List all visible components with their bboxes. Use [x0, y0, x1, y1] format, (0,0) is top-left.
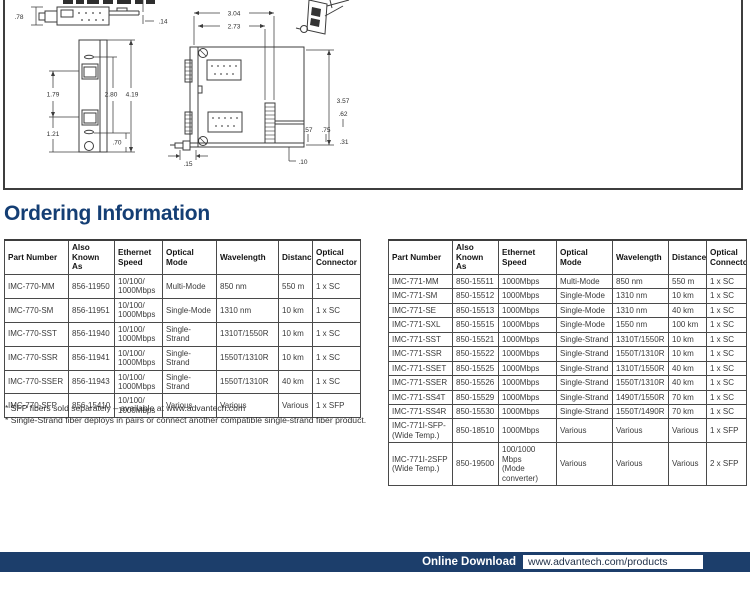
table-cell: Various — [669, 419, 707, 443]
column-header: Also Known As — [69, 240, 115, 275]
table-cell: IMC-771-SS4T — [389, 390, 453, 404]
table-cell: 1310T/1550R — [613, 332, 669, 346]
table-cell: Single-Strand — [557, 332, 613, 346]
dimension-label: .78 — [14, 14, 23, 21]
table-row: IMC-770-SM856-1195110/100/ 1000MbpsSingl… — [5, 298, 361, 322]
table-cell: IMC-771-SSER — [389, 376, 453, 390]
table-cell: 850-15525 — [453, 361, 499, 375]
table-row: IMC-771I-2SFP (Wide Temp.)850-19500100/1… — [389, 443, 747, 486]
table-cell: 550 m — [669, 275, 707, 289]
table-cell: 1 x SC — [707, 303, 747, 317]
table-cell: 2 x SFP — [707, 443, 747, 486]
table-cell: 1000Mbps — [499, 361, 557, 375]
table-cell: 856-11941 — [69, 346, 115, 370]
table-cell: 10/100/ 1000Mbps — [115, 370, 163, 394]
front-panel-view — [49, 40, 135, 152]
table-cell: 70 km — [669, 404, 707, 418]
table-cell: 10/100/ 1000Mbps — [115, 322, 163, 346]
table-cell: IMC-771-SXL — [389, 318, 453, 332]
dimension-label: 4.19 — [126, 92, 139, 99]
download-url[interactable]: www.advantech.com/products — [523, 555, 703, 569]
table-cell: Single-Mode — [557, 303, 613, 317]
table-cell: 550 m — [279, 275, 313, 299]
ordering-table-imc771: Part NumberAlso Known AsEthernet SpeedOp… — [388, 239, 747, 486]
table-cell: 1 x SC — [707, 361, 747, 375]
dimension-label: 3.57 — [337, 98, 350, 105]
table-cell: 1 x SC — [313, 298, 361, 322]
table-cell: 850-18510 — [453, 419, 499, 443]
table-cell: 1550T/1310R — [613, 376, 669, 390]
table-cell: 850-15529 — [453, 390, 499, 404]
table-cell: IMC-771-MM — [389, 275, 453, 289]
table-cell: 850 nm — [217, 275, 279, 299]
dimension-label: .31 — [339, 139, 348, 146]
table-row: IMC-771-SS4T850-155291000MbpsSingle-Stra… — [389, 390, 747, 404]
header-row: Part NumberAlso Known AsEthernet SpeedOp… — [5, 240, 361, 275]
table-row: IMC-771-SE850-155131000MbpsSingle-Mode13… — [389, 303, 747, 317]
dimension-label: .57 — [303, 127, 312, 134]
table-cell: 850-15522 — [453, 347, 499, 361]
table-cell: Single-Strand — [557, 404, 613, 418]
table-cell: Single-Mode — [557, 318, 613, 332]
dimension-drawing: .78 .14 1.79 2.80 4.19 1.21 .70 3.04 2.7… — [3, 0, 743, 190]
table-cell: Various — [557, 419, 613, 443]
table-cell: Single-Strand — [163, 346, 217, 370]
table-row: IMC-771I-SFP- (Wide Temp.)850-185101000M… — [389, 419, 747, 443]
column-header: Optical Connector — [707, 240, 747, 275]
column-header: Optical Mode — [163, 240, 217, 275]
table-cell: IMC-770-SST — [5, 322, 69, 346]
ordering-table-imc770: Part NumberAlso Known AsEthernet SpeedOp… — [4, 239, 361, 418]
table-cell: 1490T/1550R — [613, 390, 669, 404]
table-cell: 1550T/1310R — [613, 347, 669, 361]
table-cell: 1 x SC — [313, 322, 361, 346]
table-cell: 10/100/ 1000Mbps — [115, 275, 163, 299]
table-cell: 1 x SC — [313, 346, 361, 370]
table-cell: 1 x SC — [707, 318, 747, 332]
table-cell: 1 x SC — [707, 347, 747, 361]
table-cell: 1 x SC — [707, 376, 747, 390]
dimension-label: .75 — [321, 127, 330, 134]
footnote-single-strand: * Single-Strand fiber deploys in pairs o… — [5, 414, 366, 426]
table-cell: IMC-771-SE — [389, 303, 453, 317]
table-cell: 856-11950 — [69, 275, 115, 299]
table-row: IMC-771-MM850-155111000MbpsMulti-Mode850… — [389, 275, 747, 289]
column-header: Part Number — [389, 240, 453, 275]
table-cell: Single-Strand — [163, 322, 217, 346]
table-cell: 1000Mbps — [499, 303, 557, 317]
table-cell: 850-15511 — [453, 275, 499, 289]
table-cell: Various — [557, 443, 613, 486]
online-download-label: Online Download — [422, 556, 516, 568]
dimension-label: 1.21 — [47, 131, 60, 138]
column-header: Also Known As — [453, 240, 499, 275]
dimension-label: .62 — [338, 111, 347, 118]
table-cell: 10 km — [279, 298, 313, 322]
table-cell: 1550T/1310R — [217, 370, 279, 394]
table-cell: 1000Mbps — [499, 347, 557, 361]
table-row: IMC-771-SSR850-155221000MbpsSingle-Stran… — [389, 347, 747, 361]
table-row: IMC-771-SST850-155211000MbpsSingle-Stran… — [389, 332, 747, 346]
table-cell: Single-Mode — [163, 298, 217, 322]
dimension-label: 2.73 — [228, 24, 241, 31]
module-side-view — [168, 11, 343, 161]
table-cell: 10 km — [279, 346, 313, 370]
table-row: IMC-771-SSER850-155261000MbpsSingle-Stra… — [389, 376, 747, 390]
dimension-label: 2.80 — [105, 92, 118, 99]
table-cell: IMC-771-SSET — [389, 361, 453, 375]
table-cell: 850-15526 — [453, 376, 499, 390]
header-row: Part NumberAlso Known AsEthernet SpeedOp… — [389, 240, 747, 275]
table-row: IMC-770-SSER856-1194310/100/ 1000MbpsSin… — [5, 370, 361, 394]
footnotes: * SFP fibers sold separately – available… — [5, 402, 366, 426]
table-cell: IMC-771-SM — [389, 289, 453, 303]
table-row: IMC-770-MM856-1195010/100/ 1000MbpsMulti… — [5, 275, 361, 299]
table-cell: 1000Mbps — [499, 289, 557, 303]
table-cell: 1310 nm — [613, 303, 669, 317]
dimension-label: .14 — [158, 19, 167, 26]
table-cell: IMC-771-SST — [389, 332, 453, 346]
table-cell: 1 x SC — [313, 275, 361, 299]
table-cell: 10 km — [669, 332, 707, 346]
table-cell: 1 x SC — [707, 390, 747, 404]
table-cell: 40 km — [279, 370, 313, 394]
table-cell: IMC-770-MM — [5, 275, 69, 299]
table-row: IMC-770-SST856-1194010/100/ 1000MbpsSing… — [5, 322, 361, 346]
table-cell: 1000Mbps — [499, 376, 557, 390]
dimension-drawing-svg: .78 .14 1.79 2.80 4.19 1.21 .70 3.04 2.7… — [5, 0, 740, 186]
table-row: IMC-771-SSET850-155251000MbpsSingle-Stra… — [389, 361, 747, 375]
column-header: Part Number — [5, 240, 69, 275]
table-cell: 850-15521 — [453, 332, 499, 346]
table-cell: 1 x SC — [313, 370, 361, 394]
column-header: Ethernet Speed — [115, 240, 163, 275]
table-cell: 10/100/ 1000Mbps — [115, 298, 163, 322]
table-cell: 850-15513 — [453, 303, 499, 317]
table-cell: 1550T/1490R — [613, 404, 669, 418]
side-view-top — [31, 0, 155, 25]
online-download-bar: Online Download www.advantech.com/produc… — [0, 552, 750, 572]
table-cell: 1000Mbps — [499, 390, 557, 404]
table-row: IMC-770-SSR856-1194110/100/ 1000MbpsSing… — [5, 346, 361, 370]
table-row: IMC-771-SXL850-155151000MbpsSingle-Mode1… — [389, 318, 747, 332]
column-header: Wavelength — [217, 240, 279, 275]
table-cell: 1 x SC — [707, 332, 747, 346]
table-cell: IMC-771-SS4R — [389, 404, 453, 418]
table-cell: 1310 nm — [613, 289, 669, 303]
dimension-label: .70 — [112, 140, 121, 147]
dimension-label: .10 — [298, 159, 307, 166]
table-cell: IMC-770-SSER — [5, 370, 69, 394]
table-cell: 1310T/1550R — [217, 322, 279, 346]
table-cell: 850-15530 — [453, 404, 499, 418]
table-cell: Single-Strand — [557, 390, 613, 404]
table-cell: 850-19500 — [453, 443, 499, 486]
table-cell: 1 x SC — [707, 404, 747, 418]
table-cell: 850-15515 — [453, 318, 499, 332]
table-cell: IMC-770-SSR — [5, 346, 69, 370]
table-cell: 100 km — [669, 318, 707, 332]
footnote-sfp: * SFP fibers sold separately – available… — [5, 402, 366, 414]
column-header: Wavelength — [613, 240, 669, 275]
table-cell: 856-11943 — [69, 370, 115, 394]
table-cell: Multi-Mode — [163, 275, 217, 299]
table-cell: Various — [613, 419, 669, 443]
table-cell: Single-Strand — [163, 370, 217, 394]
column-header: Distance — [279, 240, 313, 275]
column-header: Optical Connector — [313, 240, 361, 275]
table-cell: IMC-771I-SFP- (Wide Temp.) — [389, 419, 453, 443]
table-cell: 850-15512 — [453, 289, 499, 303]
table-cell: 10/100/ 1000Mbps — [115, 346, 163, 370]
table-cell: 70 km — [669, 390, 707, 404]
table-cell: Various — [669, 443, 707, 486]
table-cell: Single-Strand — [557, 376, 613, 390]
table-cell: 1 x SC — [707, 289, 747, 303]
table-cell: 1 x SFP — [707, 419, 747, 443]
table-cell: IMC-771-SSR — [389, 347, 453, 361]
table-cell: 1550 nm — [613, 318, 669, 332]
table-cell: 1310 nm — [217, 298, 279, 322]
table-cell: 10 km — [669, 289, 707, 303]
table-cell: Various — [613, 443, 669, 486]
table-row: IMC-771-SM850-155121000MbpsSingle-Mode13… — [389, 289, 747, 303]
dimension-label: 1.79 — [47, 92, 60, 99]
table-row: IMC-771-SS4R850-155301000MbpsSingle-Stra… — [389, 404, 747, 418]
table-cell: 40 km — [669, 361, 707, 375]
column-header: Ethernet Speed — [499, 240, 557, 275]
dimension-label: 3.04 — [228, 11, 241, 18]
table-cell: 40 km — [669, 376, 707, 390]
table-cell: 1 x SC — [707, 275, 747, 289]
table-cell: 1000Mbps — [499, 275, 557, 289]
table-cell: 100/1000 Mbps (Mode converter) — [499, 443, 557, 486]
column-header: Distance — [669, 240, 707, 275]
table-cell: 1000Mbps — [499, 332, 557, 346]
table-cell: 1310T/1550R — [613, 361, 669, 375]
dimension-label: .15 — [183, 161, 192, 168]
page-title: Ordering Information — [4, 202, 210, 226]
table-cell: 10 km — [669, 347, 707, 361]
table-cell: Single-Mode — [557, 289, 613, 303]
table-cell: 1000Mbps — [499, 404, 557, 418]
table-cell: 40 km — [669, 303, 707, 317]
table-cell: 1550T/1310R — [217, 346, 279, 370]
isometric-view — [296, 0, 349, 34]
table-cell: 10 km — [279, 322, 313, 346]
table-cell: 1000Mbps — [499, 318, 557, 332]
column-header: Optical Mode — [557, 240, 613, 275]
table-cell: Multi-Mode — [557, 275, 613, 289]
table-cell: 856-11940 — [69, 322, 115, 346]
table-cell: Single-Strand — [557, 361, 613, 375]
table-cell: 856-11951 — [69, 298, 115, 322]
table-cell: Single-Strand — [557, 347, 613, 361]
table-cell: 850 nm — [613, 275, 669, 289]
table-cell: IMC-771I-2SFP (Wide Temp.) — [389, 443, 453, 486]
table-cell: IMC-770-SM — [5, 298, 69, 322]
table-cell: 1000Mbps — [499, 419, 557, 443]
